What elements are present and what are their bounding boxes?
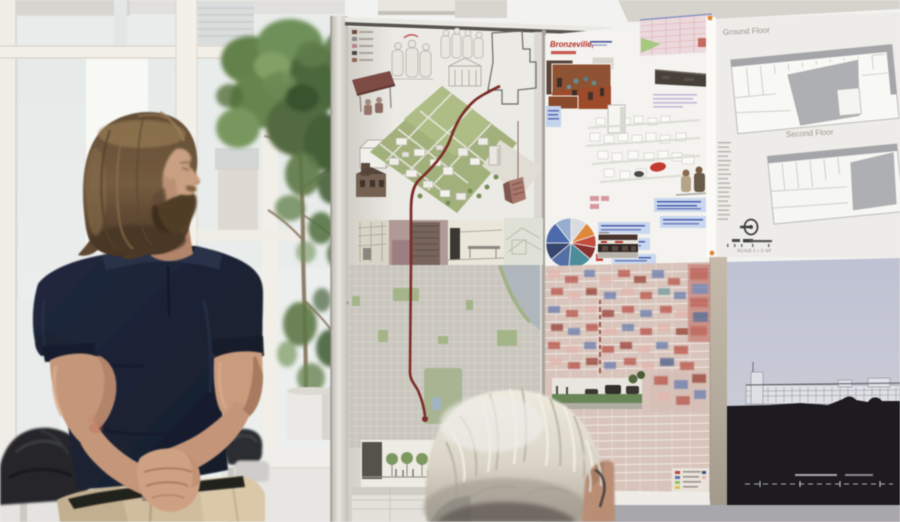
svg-text:SCALE 1 = 1'-10': SCALE 1 = 1'-10': [737, 248, 772, 253]
svg-text:Bronzeville,: Bronzeville,: [550, 40, 594, 49]
